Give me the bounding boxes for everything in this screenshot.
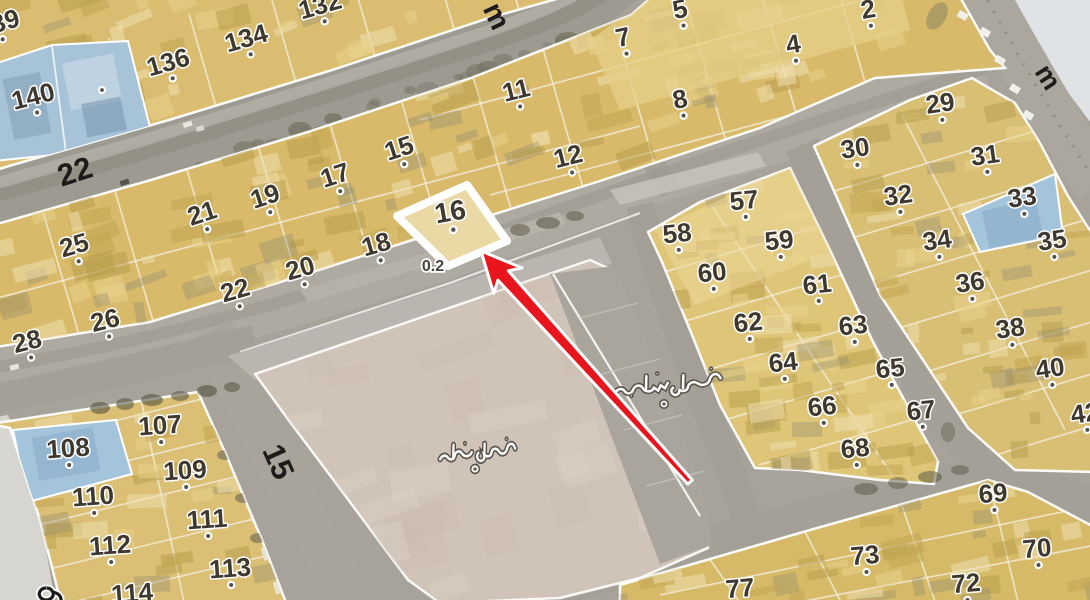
svg-text:107: 107	[137, 409, 182, 442]
svg-text:29: 29	[924, 86, 957, 120]
svg-text:42: 42	[1069, 396, 1090, 430]
svg-text:31: 31	[969, 138, 1002, 172]
svg-text:58: 58	[661, 217, 693, 250]
svg-text:108: 108	[45, 432, 90, 465]
svg-text:16: 16	[432, 194, 468, 230]
svg-text:64: 64	[767, 346, 799, 379]
svg-text:113: 113	[208, 552, 252, 585]
svg-text:72: 72	[950, 567, 981, 599]
svg-text:111: 111	[186, 503, 229, 536]
svg-text:57: 57	[728, 184, 760, 217]
svg-text:35: 35	[1036, 223, 1069, 257]
svg-text:59: 59	[763, 224, 795, 257]
svg-text:36: 36	[954, 265, 987, 299]
svg-text:110: 110	[71, 480, 115, 513]
svg-text:38: 38	[994, 311, 1027, 345]
svg-text:65: 65	[874, 352, 906, 385]
svg-text:77: 77	[724, 572, 755, 600]
svg-text:114: 114	[110, 577, 154, 600]
svg-text:61: 61	[801, 268, 833, 301]
svg-text:33: 33	[1006, 180, 1039, 214]
svg-text:66: 66	[806, 390, 838, 423]
svg-text:60: 60	[696, 256, 728, 289]
svg-text:30: 30	[839, 131, 872, 165]
svg-text:34: 34	[921, 223, 954, 257]
svg-text:32: 32	[882, 178, 915, 212]
svg-text:68: 68	[839, 432, 871, 465]
svg-text:73: 73	[849, 539, 880, 571]
svg-text:109: 109	[162, 454, 207, 487]
svg-text:112: 112	[88, 529, 132, 562]
svg-text:40: 40	[1034, 351, 1067, 385]
svg-text:62: 62	[732, 306, 764, 339]
svg-text:70: 70	[1021, 532, 1052, 564]
svg-text:67: 67	[905, 394, 937, 427]
svg-text:63: 63	[837, 309, 869, 342]
svg-text:69: 69	[977, 477, 1008, 509]
svg-text:0.2: 0.2	[422, 258, 444, 275]
